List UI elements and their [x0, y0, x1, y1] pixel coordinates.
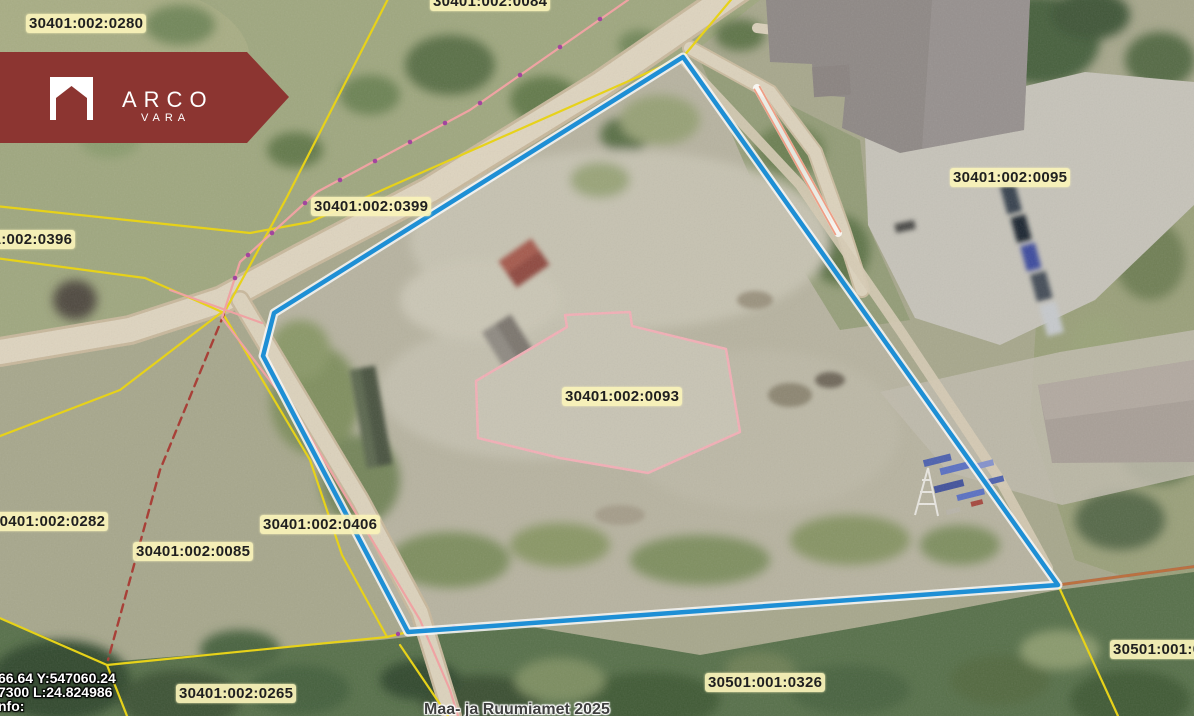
logo-sub-text: VARA — [141, 112, 190, 124]
house-icon — [50, 77, 93, 120]
cadastral-label-0326: 30501:001:0326 — [705, 673, 825, 692]
coordinate-line-1: 66.64 Y:547060.24 — [0, 671, 116, 685]
logo-brand-text: ARCO — [122, 87, 214, 112]
cadastral-label-0084: 30401:002:0084 — [430, 0, 550, 11]
cadastral-label-0095: 30401:002:0095 — [950, 168, 1070, 187]
coordinate-readout: 66.64 Y:547060.24 7300 L:24.824986 nfo: — [0, 671, 116, 713]
map-viewport: 30401:002:0280 30401:002:0084 30401:002:… — [0, 0, 1194, 716]
cadastral-label-0280: 30401:002:0280 — [26, 14, 146, 33]
cadastral-label-0406: 30401:002:0406 — [260, 515, 380, 534]
cadastral-label-0085: 30401:002:0085 — [133, 542, 253, 561]
coordinate-line-2: 7300 L:24.824986 — [0, 685, 116, 699]
arco-vara-logo: ARCO VARA — [0, 42, 300, 152]
cadastral-label-0282: 30401:002:0282 — [0, 512, 108, 531]
cadastral-label-0265: 30401:002:0265 — [176, 684, 296, 703]
cadastral-label-0399: 30401:002:0399 — [311, 197, 431, 216]
cadastral-label-0093: 30401:002:0093 — [562, 387, 682, 406]
coordinate-line-3: nfo: — [0, 699, 116, 713]
cadastral-label-30501-partial: 30501:001:0 — [1110, 640, 1194, 659]
map-attribution: Maa- ja Ruumiamet 2025 — [424, 701, 610, 716]
cadastral-label-0396: 30401:002:0396 — [0, 230, 75, 249]
